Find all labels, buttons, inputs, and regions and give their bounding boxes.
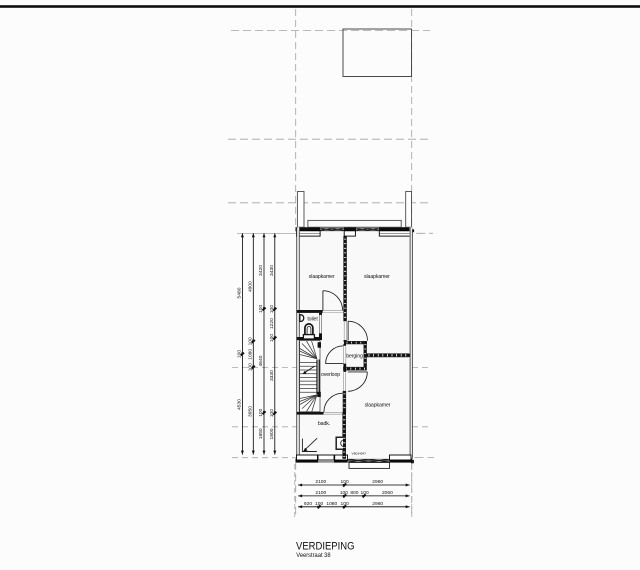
- svg-text:100: 100: [341, 501, 349, 507]
- svg-text:3430: 3430: [269, 265, 275, 276]
- svg-text:100: 100: [341, 479, 349, 485]
- svg-text:overloop: overloop: [321, 372, 340, 378]
- svg-text:1080: 1080: [248, 349, 254, 360]
- svg-text:3420: 3420: [258, 265, 264, 276]
- svg-text:100: 100: [258, 408, 264, 416]
- svg-text:2060: 2060: [382, 490, 393, 496]
- svg-text:slaapkamer: slaapkamer: [309, 274, 335, 280]
- svg-text:920: 920: [304, 501, 312, 507]
- svg-text:2100: 2100: [315, 479, 326, 485]
- svg-text:1800: 1800: [269, 428, 275, 439]
- svg-text:1850: 1850: [258, 428, 264, 439]
- svg-text:1080: 1080: [326, 501, 337, 507]
- svg-text:100: 100: [237, 350, 243, 358]
- svg-text:5480: 5480: [237, 287, 243, 298]
- svg-text:4530: 4530: [237, 399, 243, 410]
- svg-text:100: 100: [258, 305, 264, 313]
- svg-text:badk.: badk.: [318, 421, 330, 427]
- svg-text:2960: 2960: [372, 501, 383, 507]
- svg-text:3950: 3950: [248, 406, 254, 417]
- svg-text:100: 100: [269, 409, 275, 417]
- svg-text:2100: 2100: [315, 490, 326, 496]
- svg-text:4640: 4640: [258, 355, 264, 366]
- svg-text:100: 100: [340, 490, 348, 496]
- svg-text:2960: 2960: [372, 479, 383, 485]
- svg-text:berging: berging: [346, 354, 363, 360]
- svg-text:slaapkamer: slaapkamer: [364, 274, 390, 280]
- svg-text:100: 100: [315, 501, 323, 507]
- svg-text:1220: 1220: [269, 318, 275, 329]
- svg-text:100: 100: [248, 363, 254, 371]
- svg-text:Veerstraat 38: Veerstraat 38: [296, 553, 331, 559]
- svg-text:100: 100: [361, 490, 369, 496]
- svg-text:100: 100: [248, 337, 254, 345]
- svg-text:slaapkamer: slaapkamer: [365, 402, 391, 408]
- svg-text:3330: 3330: [269, 370, 275, 381]
- svg-text:VB034047: VB034047: [352, 451, 367, 455]
- svg-text:VERDIEPING: VERDIEPING: [296, 541, 355, 553]
- svg-text:4900: 4900: [248, 281, 254, 292]
- svg-text:toilet: toilet: [307, 317, 318, 323]
- svg-text:800: 800: [350, 490, 358, 496]
- svg-text:100: 100: [269, 305, 275, 313]
- svg-text:100: 100: [269, 334, 275, 342]
